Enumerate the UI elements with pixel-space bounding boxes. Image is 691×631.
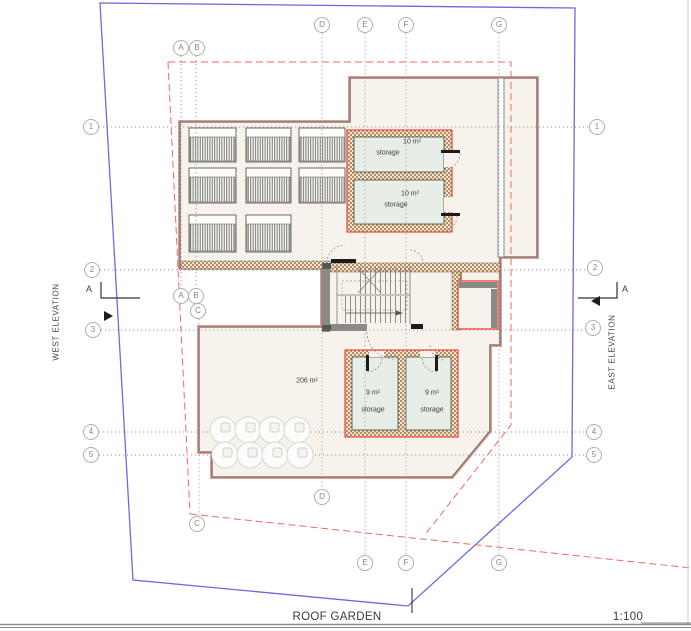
- grid-bubble-4-left: 4: [83, 424, 99, 440]
- room-area-label: 9 m²: [366, 390, 380, 397]
- grid-bubble-E-top: E: [357, 17, 373, 33]
- grid-bubble-B-mid: B: [188, 288, 204, 304]
- grid-bubble-1-right: 1: [589, 119, 605, 135]
- grid-bubble-G-bottom: G: [491, 555, 507, 571]
- grid-bubble-3-right: 3: [585, 320, 601, 336]
- grid-bubble-C-mid: C: [190, 303, 206, 319]
- grid-bubble-C-bottom: C: [189, 516, 205, 532]
- floor-plan-page: A B D E F G 1 2 3 4 5 A B C 1 2 3 4 5 C …: [0, 0, 691, 631]
- grid-bubble-E-bottom: E: [357, 555, 373, 571]
- grid-bubble-B-top: B: [189, 40, 205, 56]
- grid-bubble-1-left: 1: [83, 119, 99, 135]
- grid-bubble-F-top: F: [398, 17, 414, 33]
- east-elevation-label: EAST ELEVATION: [608, 314, 617, 389]
- section-letter-east: A: [622, 284, 628, 294]
- grid-bubble-4-right: 4: [586, 424, 602, 440]
- grid-bubble-D-bottom: D: [314, 489, 330, 505]
- storage-lower-block: [345, 350, 458, 437]
- grid-bubble-D-top: D: [314, 17, 330, 33]
- storage-upper-block: [347, 130, 453, 232]
- section-letter-west: A: [86, 284, 92, 294]
- grid-bubble-A-mid: A: [173, 288, 189, 304]
- grid-bubble-2-right: 2: [587, 260, 603, 276]
- drawing-title: ROOF GARDEN: [293, 611, 382, 623]
- grid-bubble-3-left: 3: [85, 322, 101, 338]
- west-elevation-label: WEST ELEVATION: [52, 283, 61, 360]
- grid-bubble-2-left: 2: [84, 262, 100, 278]
- grid-bubble-A-top: A: [173, 40, 189, 56]
- grid-bubble-F-bottom: F: [398, 555, 414, 571]
- room-area-label: 10 m²: [401, 191, 419, 198]
- grid-bubble-5-right: 5: [586, 447, 602, 463]
- west-elevation-arrow-icon: [104, 311, 113, 321]
- room-area-label: 9 m²: [425, 390, 439, 397]
- elevator-shaft: [458, 272, 498, 329]
- room-area-label: 10 m²: [403, 139, 421, 146]
- room-name-label: storage: [420, 407, 443, 414]
- drawing-scale: 1:100: [613, 611, 643, 623]
- room-name-label: storage: [361, 407, 384, 414]
- room-name-label: storage: [384, 202, 407, 209]
- terrace-area-label: 206 m²: [296, 378, 318, 385]
- room-name-label: storage: [376, 150, 399, 157]
- east-elevation-arrow-icon: [591, 296, 600, 306]
- grid-bubble-5-left: 5: [83, 447, 99, 463]
- grid-bubble-G-top: G: [491, 17, 507, 33]
